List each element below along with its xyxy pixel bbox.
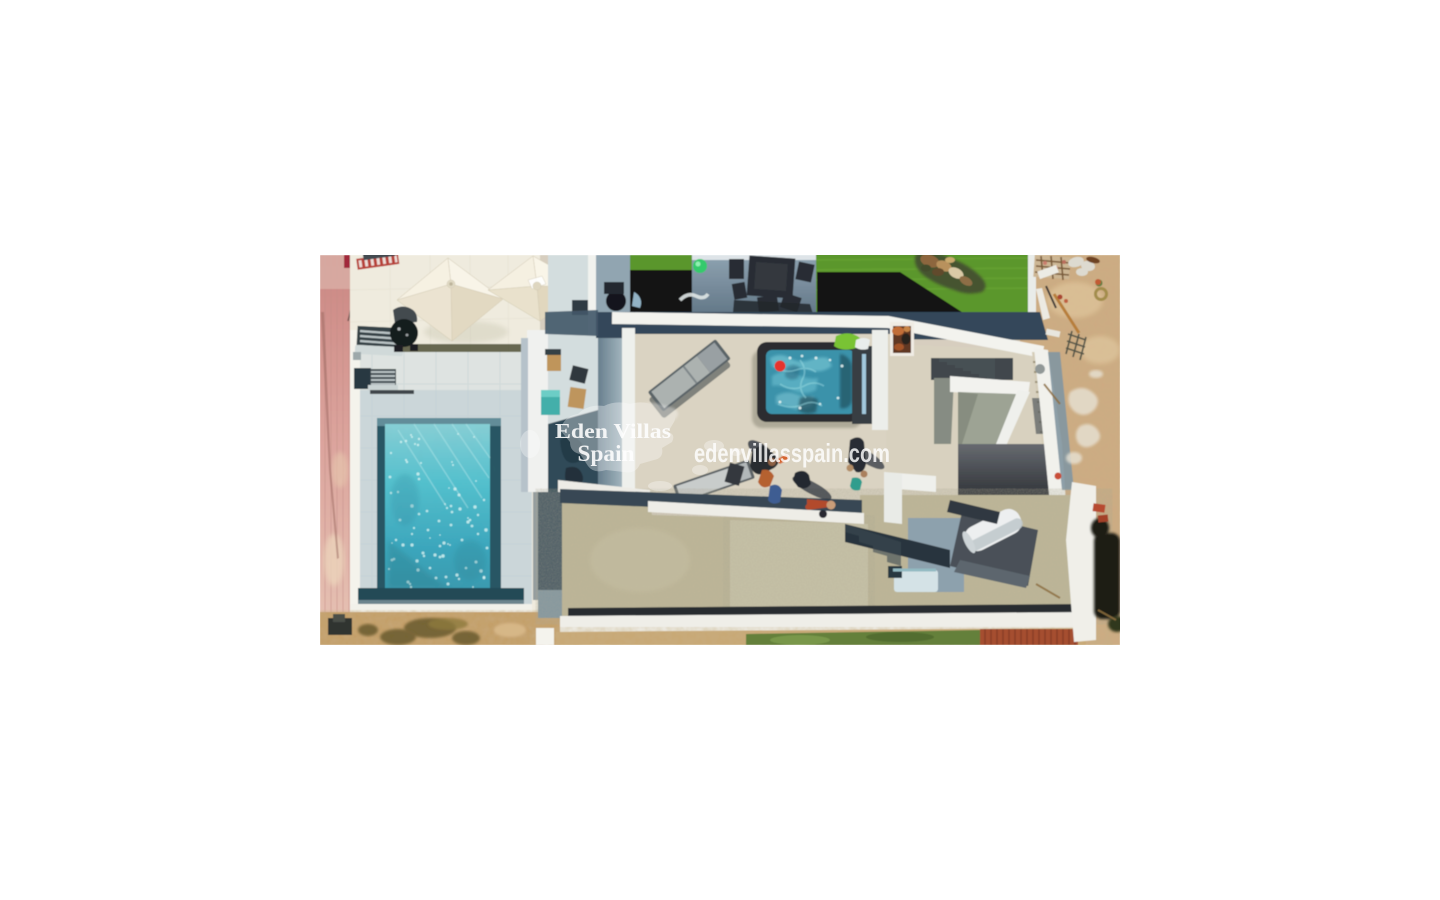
svg-text:edenvillasspain.com: edenvillasspain.com [694,438,890,468]
svg-text:Eden Villas: Eden Villas [555,419,671,443]
svg-text:Spain: Spain [578,441,635,466]
